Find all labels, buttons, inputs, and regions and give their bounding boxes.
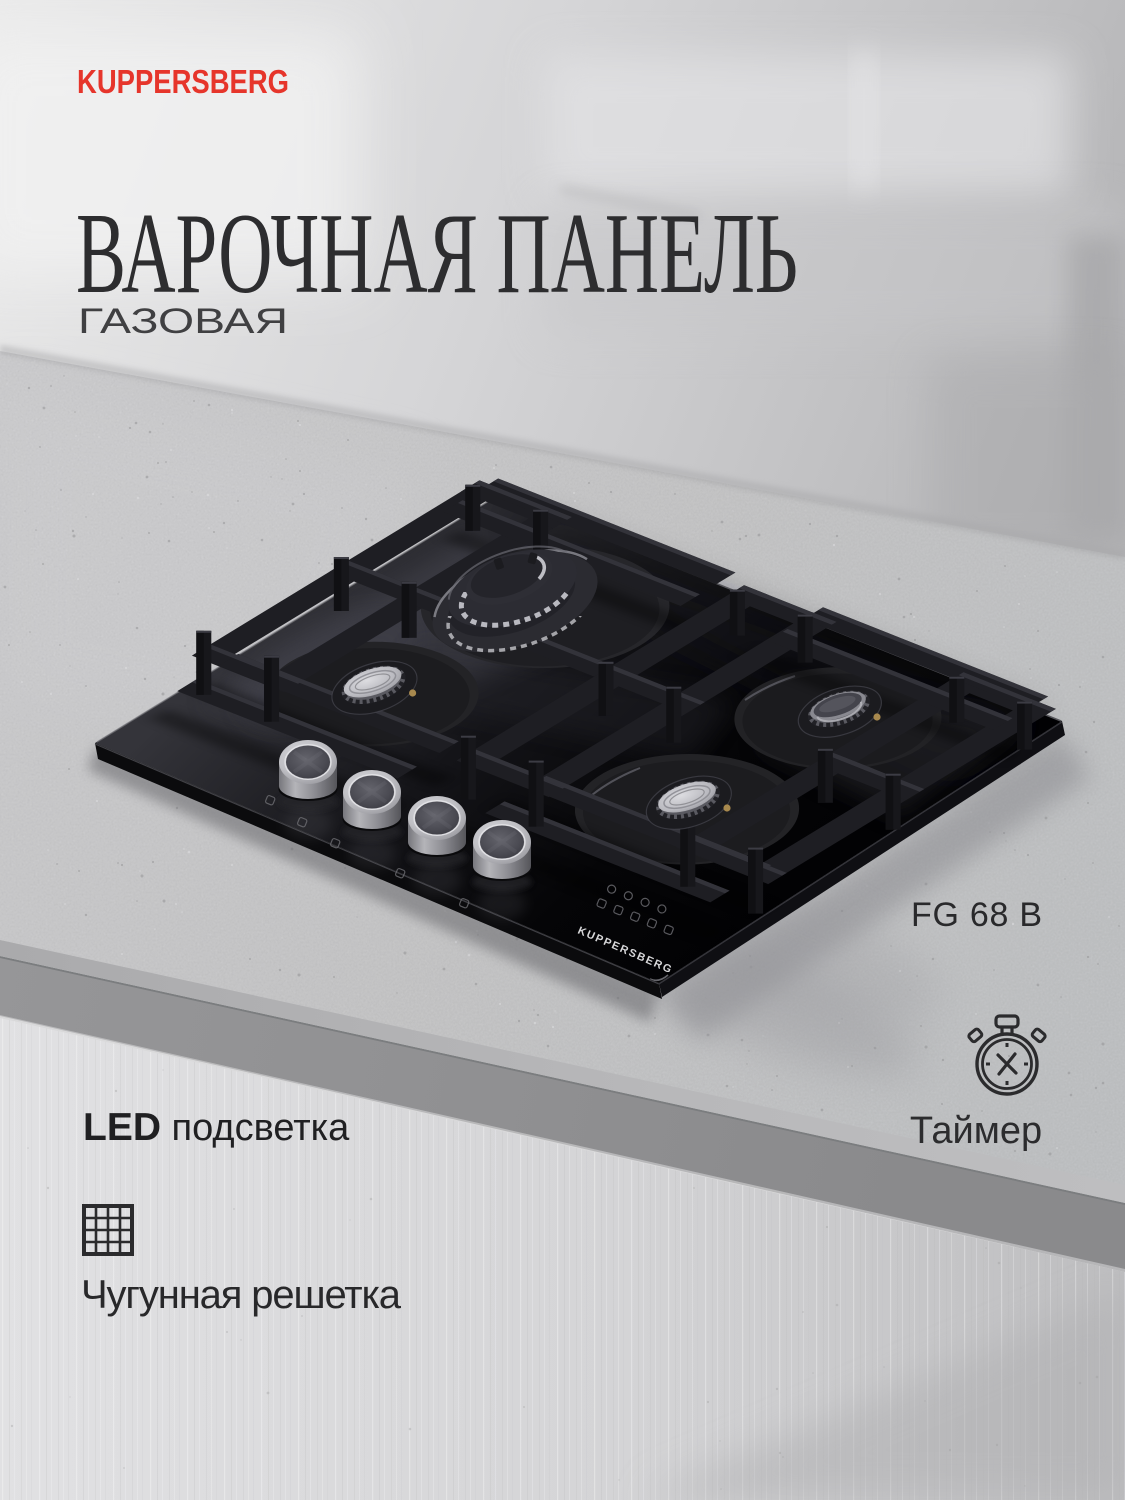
svg-text:LED подсветка: LED подсветка <box>83 1106 350 1149</box>
svg-text:FG 68 B: FG 68 B <box>911 896 1042 934</box>
svg-text:Чугунная решетка: Чугунная решетка <box>81 1273 402 1317</box>
svg-text:ГАЗОВАЯ: ГАЗОВАЯ <box>78 302 288 341</box>
svg-text:KUPPERSBERG: KUPPERSBERG <box>77 63 289 100</box>
svg-text:ВАРОЧНАЯ ПАНЕЛЬ: ВАРОЧНАЯ ПАНЕЛЬ <box>76 190 798 318</box>
svg-text:Таймер: Таймер <box>910 1110 1042 1152</box>
